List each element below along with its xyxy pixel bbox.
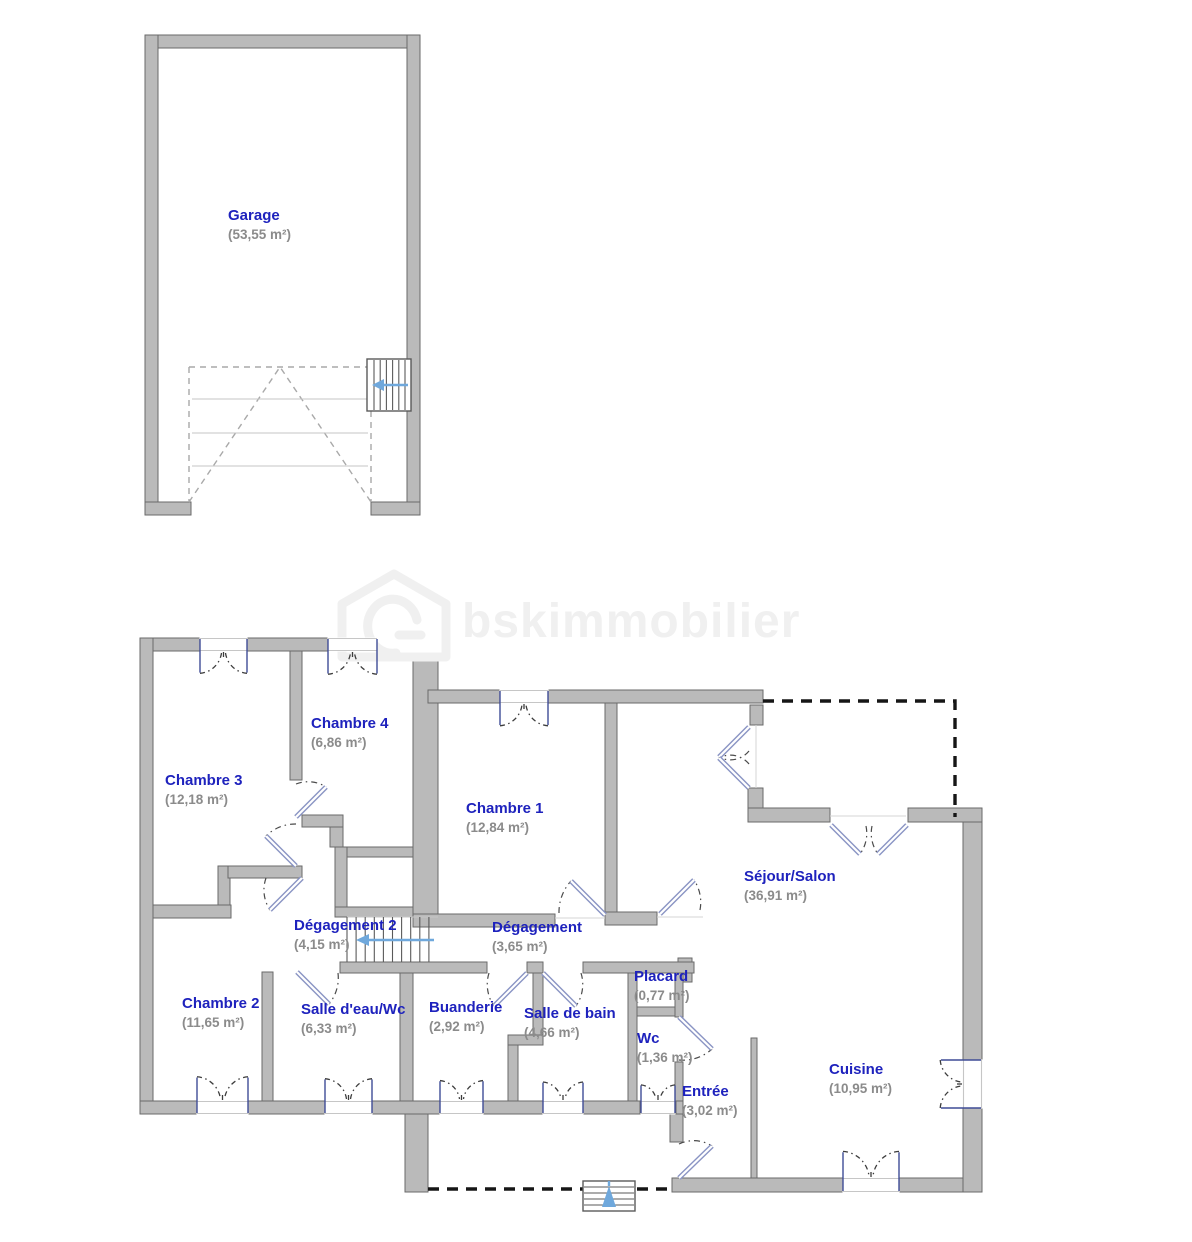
wall (548, 690, 763, 703)
room-label-wc: Wc (1,36 m²) (637, 1030, 693, 1067)
room-name: Salle d'eau/Wc (301, 1001, 405, 1019)
room-label-buanderie: Buanderie (2,92 m²) (429, 999, 502, 1036)
wall (330, 827, 343, 847)
wall (407, 35, 420, 515)
wall (340, 962, 487, 973)
window (543, 1082, 584, 1115)
room-area: (6,33 m²) (301, 1020, 405, 1038)
watermark-text: bskimmobilier (462, 594, 800, 649)
wall (605, 912, 657, 925)
garage-door-marking (189, 367, 371, 502)
room-area: (4,15 m²) (294, 936, 397, 954)
room-name: Dégagement (492, 919, 582, 937)
door (296, 782, 326, 817)
window (500, 690, 549, 726)
door (264, 878, 302, 910)
wall (748, 808, 830, 822)
wall (247, 638, 328, 651)
wall (527, 962, 543, 973)
room-area: (3,65 m²) (492, 938, 582, 956)
room-area: (12,18 m²) (165, 791, 243, 809)
door (660, 880, 701, 914)
room-label-chambre2: Chambre 2 (11,65 m²) (182, 995, 260, 1032)
room-label-degagement: Dégagement (3,65 m²) (492, 919, 582, 956)
wall (963, 810, 982, 1060)
stairs-layer (347, 359, 635, 1211)
room-label-garage: Garage (53,55 m²) (228, 207, 291, 244)
room-area: (10,95 m²) (829, 1080, 892, 1098)
room-label-entree: Entrée (3,02 m²) (682, 1083, 738, 1120)
room-name: Chambre 3 (165, 772, 243, 790)
room-label-salledebain: Salle de bain (4,66 m²) (524, 1005, 616, 1042)
room-name: Salle de bain (524, 1005, 616, 1023)
room-name: Garage (228, 207, 291, 225)
wall (372, 1101, 440, 1114)
room-label-chambre3: Chambre 3 (12,18 m²) (165, 772, 243, 809)
wall (262, 972, 273, 1101)
room-label-chambre4: Chambre 4 (6,86 m²) (311, 715, 389, 752)
terrace-dashed-line (763, 701, 955, 817)
wall (335, 907, 413, 917)
wall (751, 1038, 757, 1178)
window (325, 1079, 373, 1115)
room-name: Dégagement 2 (294, 917, 397, 935)
wall (583, 1101, 640, 1114)
room-label-cuisine: Cuisine (10,95 m²) (829, 1061, 892, 1098)
door (543, 973, 583, 1006)
wall (140, 638, 153, 1114)
wall (672, 1178, 843, 1192)
room-area: (2,92 m²) (429, 1018, 502, 1036)
door (266, 824, 296, 866)
room-area: (11,65 m²) (182, 1014, 260, 1032)
wall (605, 703, 617, 915)
room-label-degagement2: Dégagement 2 (4,15 m²) (294, 917, 397, 954)
door (297, 972, 338, 1004)
wall (248, 1101, 325, 1114)
room-name: Placard (634, 968, 690, 986)
wall (145, 502, 191, 515)
room-name: Entrée (682, 1083, 738, 1101)
room-name: Cuisine (829, 1061, 892, 1079)
wall (290, 651, 302, 780)
room-name: Wc (637, 1030, 693, 1048)
wall (750, 705, 763, 725)
room-area: (4,66 m²) (524, 1024, 616, 1042)
window (641, 1085, 676, 1115)
window (843, 1151, 900, 1192)
room-area: (3,02 m²) (682, 1102, 738, 1120)
wall (748, 788, 763, 808)
wall (145, 35, 158, 515)
room-name: Chambre 2 (182, 995, 260, 1013)
room-label-sejour: Séjour/Salon (36,91 m²) (744, 868, 836, 905)
room-label-placard: Placard (0,77 m²) (634, 968, 690, 1005)
door (871, 825, 907, 854)
room-name: Séjour/Salon (744, 868, 836, 886)
room-area: (53,55 m²) (228, 226, 291, 244)
window (940, 1060, 982, 1109)
wall (371, 502, 420, 515)
wall (153, 905, 231, 918)
room-name: Chambre 4 (311, 715, 389, 733)
room-area: (0,77 m²) (634, 987, 690, 1005)
wall (228, 866, 302, 878)
room-area: (1,36 m²) (637, 1049, 693, 1067)
wall (302, 815, 343, 827)
window (197, 1077, 249, 1115)
room-area: (12,84 m²) (466, 819, 544, 837)
room-name: Buanderie (429, 999, 502, 1017)
wall (140, 1101, 197, 1114)
wall (428, 690, 500, 703)
room-label-salledeau: Salle d'eau/Wc (6,33 m²) (301, 1001, 405, 1038)
room-area: (6,86 m²) (311, 734, 389, 752)
wall (145, 35, 420, 48)
window (200, 638, 248, 674)
window (440, 1081, 484, 1115)
floorplan-page: bskimmobilier Garage (53,55 m²) Chambre … (0, 0, 1192, 1242)
room-label-chambre1: Chambre 1 (12,84 m²) (466, 800, 544, 837)
room-name: Chambre 1 (466, 800, 544, 818)
wall (405, 1114, 428, 1192)
door (559, 881, 605, 915)
wall (963, 1108, 982, 1192)
door (831, 825, 867, 854)
door (679, 1141, 712, 1178)
room-area: (36,91 m²) (744, 887, 836, 905)
wall (483, 1101, 543, 1114)
wall (908, 808, 982, 822)
wall (508, 1045, 518, 1101)
